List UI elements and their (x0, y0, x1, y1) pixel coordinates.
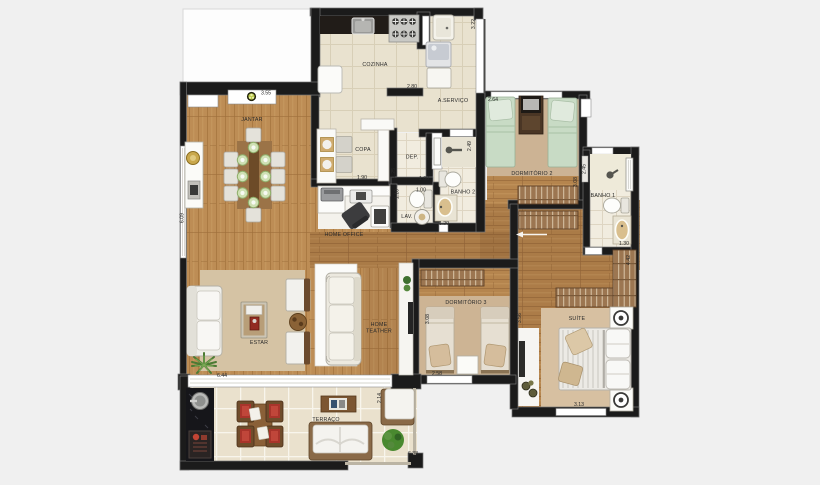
svg-text:4.42: 4.42 (626, 255, 632, 265)
svg-text:6.38: 6.38 (408, 451, 418, 457)
svg-text:3.56: 3.56 (517, 313, 523, 323)
svg-text:SUÍTE: SUÍTE (569, 315, 586, 322)
svg-text:ESTAR: ESTAR (250, 340, 268, 346)
svg-text:2.64: 2.64 (488, 97, 498, 103)
svg-text:COZINHA: COZINHA (362, 62, 388, 68)
svg-text:3.22: 3.22 (471, 19, 477, 29)
svg-text:BANHO 2: BANHO 2 (451, 190, 476, 196)
svg-text:1.10: 1.10 (395, 189, 401, 199)
svg-text:HOME: HOME (371, 322, 388, 328)
svg-text:3.55: 3.55 (261, 91, 271, 97)
svg-text:1.30: 1.30 (619, 241, 629, 247)
svg-text:3.13: 3.13 (574, 402, 584, 408)
svg-text:COPA: COPA (355, 147, 371, 153)
svg-text:2.14: 2.14 (377, 393, 383, 403)
svg-text:TERRAÇO: TERRAÇO (312, 417, 339, 423)
svg-text:HOME OFFICE: HOME OFFICE (325, 232, 364, 238)
svg-text:DORMITÓRIO 3: DORMITÓRIO 3 (445, 299, 486, 306)
svg-text:2.58: 2.58 (432, 371, 442, 377)
svg-text:6.44: 6.44 (217, 373, 227, 379)
svg-text:DORMITÓRIO 2: DORMITÓRIO 2 (511, 170, 552, 177)
svg-text:3.08: 3.08 (573, 177, 579, 187)
svg-text:1.20: 1.20 (439, 221, 449, 227)
svg-text:1.25: 1.25 (391, 168, 397, 178)
svg-text:2.80: 2.80 (407, 84, 417, 90)
svg-text:6.09: 6.09 (180, 213, 186, 223)
svg-text:JANTAR: JANTAR (241, 117, 262, 123)
svg-text:DEP.: DEP. (406, 155, 418, 161)
svg-text:1.00: 1.00 (419, 176, 429, 182)
svg-text:A.SERVIÇO: A.SERVIÇO (438, 98, 469, 104)
svg-text:2.45: 2.45 (582, 164, 588, 174)
svg-text:BANHO 1: BANHO 1 (591, 193, 616, 199)
svg-text:3.08: 3.08 (425, 314, 431, 324)
svg-text:1.90: 1.90 (357, 175, 367, 181)
svg-text:1.00: 1.00 (416, 188, 426, 194)
svg-text:LAV.: LAV. (401, 214, 412, 220)
svg-text:TEATHER: TEATHER (366, 329, 392, 335)
svg-text:2.49: 2.49 (467, 141, 473, 151)
